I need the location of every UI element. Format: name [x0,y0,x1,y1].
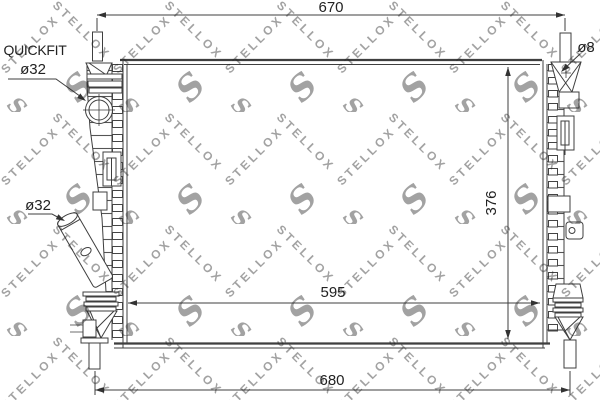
radiator-drawing: STELLOX STELLOX S S [0,0,600,400]
watermark-overlay [0,0,600,400]
technical-drawing-canvas: STELLOX STELLOX S S [0,0,600,400]
